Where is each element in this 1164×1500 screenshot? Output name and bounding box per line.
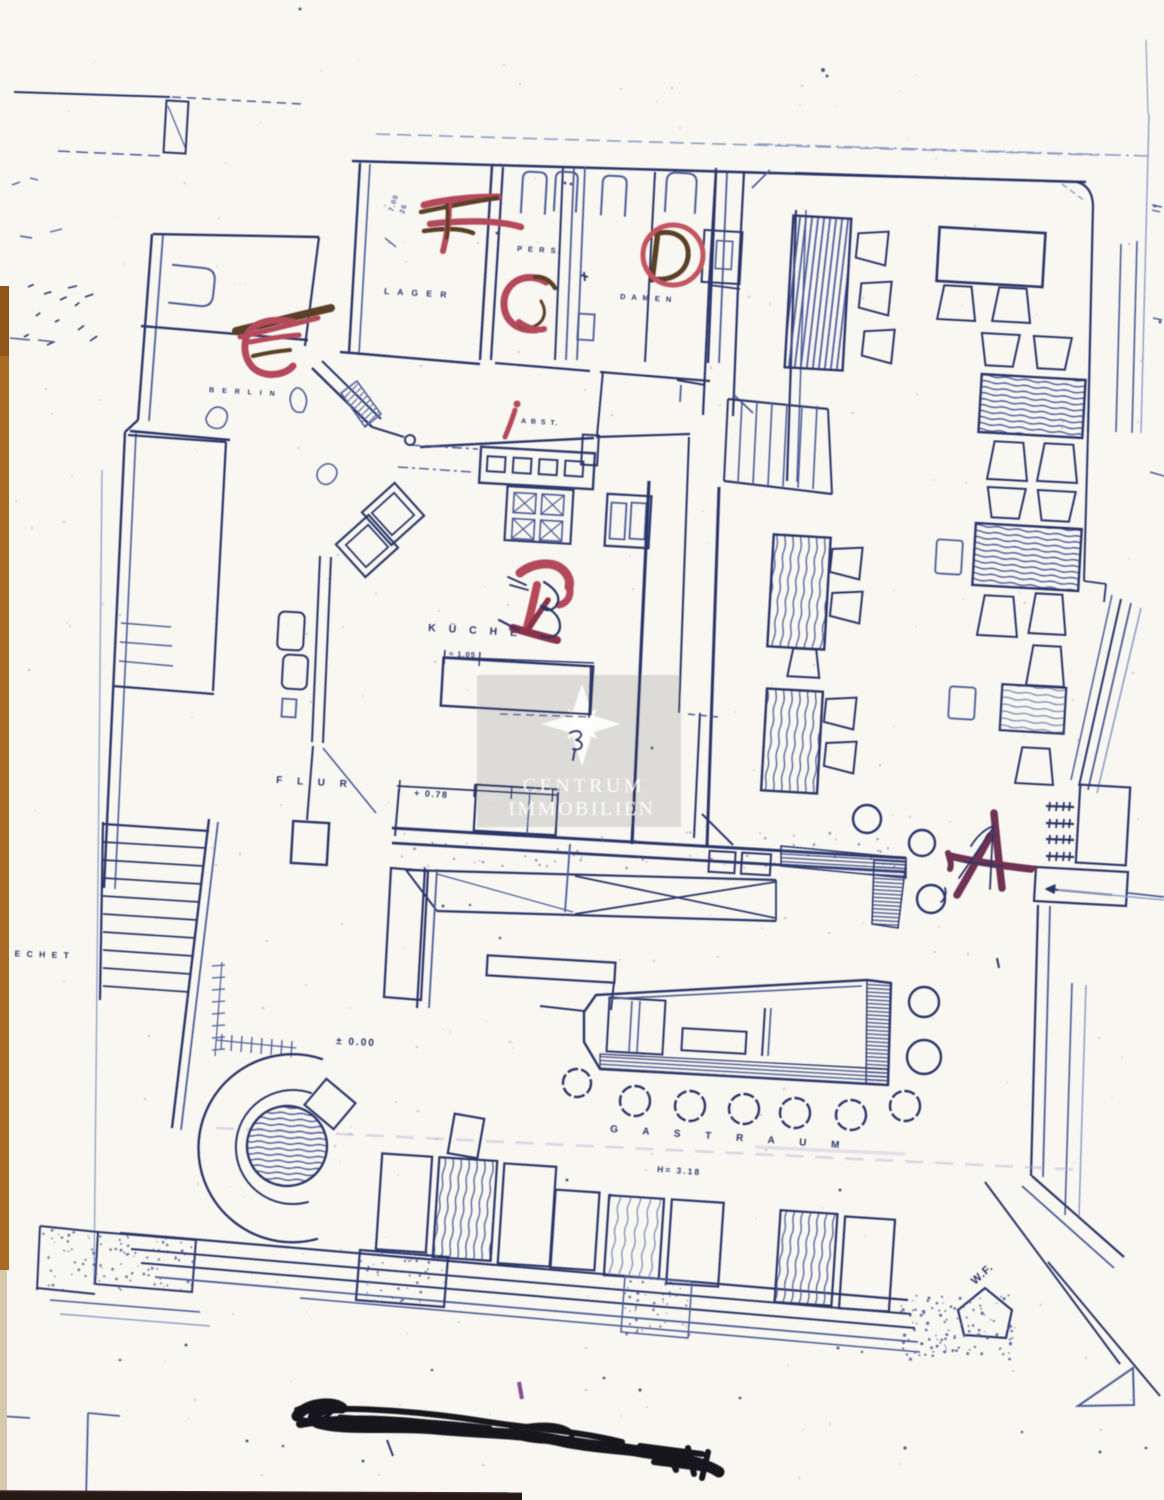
svg-text:± 0.00: ± 0.00: [336, 1036, 376, 1049]
svg-text:+ 0.78: + 0.78: [414, 788, 449, 800]
svg-text:CENTRUM: CENTRUM: [523, 775, 645, 797]
svg-text:IMMOBILIEN: IMMOBILIEN: [508, 798, 655, 820]
